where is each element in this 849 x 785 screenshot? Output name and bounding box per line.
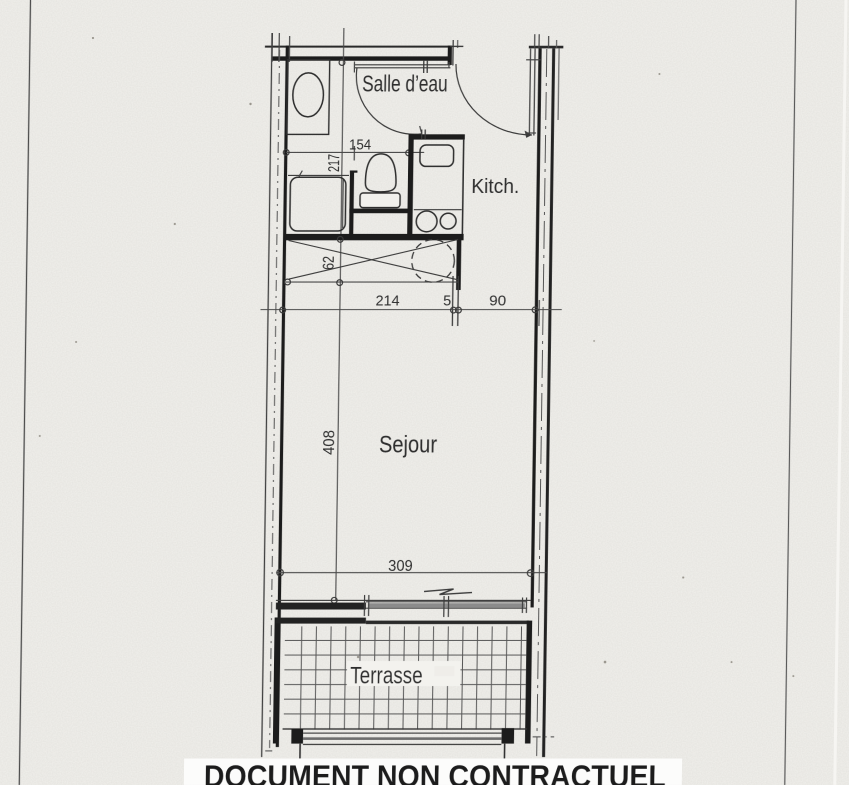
svg-text:Salle d’eau: Salle d’eau <box>362 71 448 97</box>
svg-text:90: 90 <box>489 293 506 310</box>
svg-text:DOCUMENT NON CONTRACTUEL: DOCUMENT NON CONTRACTUEL <box>204 758 667 785</box>
svg-text:214: 214 <box>375 293 399 310</box>
svg-text:62: 62 <box>320 256 337 270</box>
svg-text:154: 154 <box>349 137 371 154</box>
svg-text:Kitch.: Kitch. <box>471 175 519 198</box>
svg-text:5: 5 <box>443 293 451 310</box>
svg-text:217: 217 <box>326 154 343 172</box>
svg-text:408: 408 <box>321 430 338 455</box>
svg-text:Sejour: Sejour <box>379 432 437 459</box>
svg-text:309: 309 <box>388 558 413 575</box>
svg-text:Terrasse: Terrasse <box>350 663 423 690</box>
